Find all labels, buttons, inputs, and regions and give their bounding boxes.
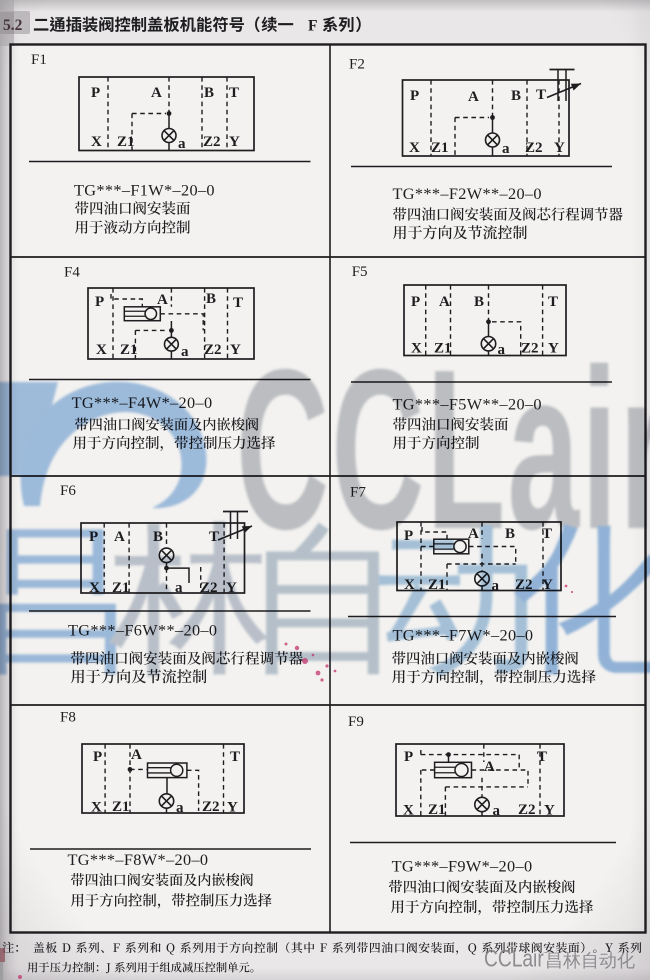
svg-text:A: A: [439, 294, 450, 310]
svg-text:F: F: [308, 18, 317, 35]
svg-text:Y: Y: [544, 803, 555, 819]
svg-text:T: T: [536, 87, 546, 103]
svg-text:a: a: [176, 800, 184, 816]
svg-text:P: P: [95, 294, 104, 310]
svg-text:T: T: [230, 749, 240, 765]
svg-text:P: P: [93, 749, 102, 765]
svg-text:B: B: [511, 88, 521, 104]
svg-text:5.2: 5.2: [3, 17, 23, 34]
svg-text:F5: F5: [352, 264, 368, 280]
svg-text:Z2: Z2: [525, 140, 543, 156]
svg-text:A: A: [114, 529, 125, 545]
svg-text:T: T: [233, 295, 243, 311]
svg-text:B: B: [474, 294, 484, 310]
svg-text:TG***–F1W*–20–0: TG***–F1W*–20–0: [74, 181, 215, 200]
svg-text:a: a: [175, 580, 183, 596]
svg-text:F4: F4: [64, 265, 80, 281]
svg-text:Z2: Z2: [204, 342, 222, 358]
svg-text:TG***–F9W*–20–0: TG***–F9W*–20–0: [392, 857, 533, 876]
svg-text:P: P: [410, 88, 419, 104]
svg-text:F9: F9: [348, 714, 364, 730]
svg-text:a: a: [178, 136, 186, 152]
svg-text:Z1: Z1: [428, 802, 446, 818]
svg-text:Y: Y: [229, 134, 240, 150]
svg-text:B: B: [204, 85, 214, 101]
svg-text:A: A: [131, 747, 142, 763]
svg-text:F6: F6: [60, 483, 76, 499]
svg-text:X: X: [409, 140, 420, 156]
svg-text:a: a: [502, 141, 510, 157]
svg-text:Z1: Z1: [117, 134, 135, 150]
svg-text:A: A: [157, 292, 168, 308]
svg-text:a: a: [181, 344, 189, 360]
svg-text:Z2: Z2: [518, 802, 536, 818]
svg-text:Z1: Z1: [120, 342, 138, 358]
svg-text:A: A: [484, 759, 495, 775]
svg-text:TG***–F8W*–20–0: TG***–F8W*–20–0: [68, 850, 209, 869]
svg-text:F2: F2: [349, 57, 365, 73]
svg-text:B: B: [206, 291, 216, 307]
svg-text:CCLair: CCLair: [236, 322, 650, 577]
svg-text:T: T: [229, 85, 239, 101]
svg-text:T: T: [548, 294, 558, 310]
svg-text:P: P: [91, 85, 100, 101]
svg-text:A: A: [468, 89, 479, 105]
svg-text:F8: F8: [60, 710, 76, 726]
svg-text:T: T: [537, 749, 547, 765]
svg-text:Y: Y: [554, 140, 565, 156]
svg-text:Z1: Z1: [431, 140, 449, 156]
svg-text:a: a: [492, 578, 500, 594]
svg-text:X: X: [96, 342, 107, 358]
svg-text:P: P: [404, 749, 413, 765]
svg-text:A: A: [151, 85, 162, 101]
svg-text:Z1: Z1: [112, 580, 130, 596]
svg-text:TG***–F2W**–20–0: TG***–F2W**–20–0: [393, 184, 542, 203]
svg-text:CCLair: CCLair: [484, 944, 544, 972]
svg-text:F1: F1: [31, 52, 47, 68]
svg-text:Z1: Z1: [112, 799, 130, 815]
svg-text:Z2: Z2: [202, 799, 220, 815]
svg-text:X: X: [403, 803, 414, 819]
svg-text:X: X: [91, 800, 102, 816]
svg-text:a: a: [493, 803, 501, 819]
svg-text:Z2: Z2: [203, 134, 221, 150]
svg-text:X: X: [91, 134, 102, 150]
svg-text:Y: Y: [227, 800, 238, 816]
svg-text:P: P: [411, 294, 420, 310]
